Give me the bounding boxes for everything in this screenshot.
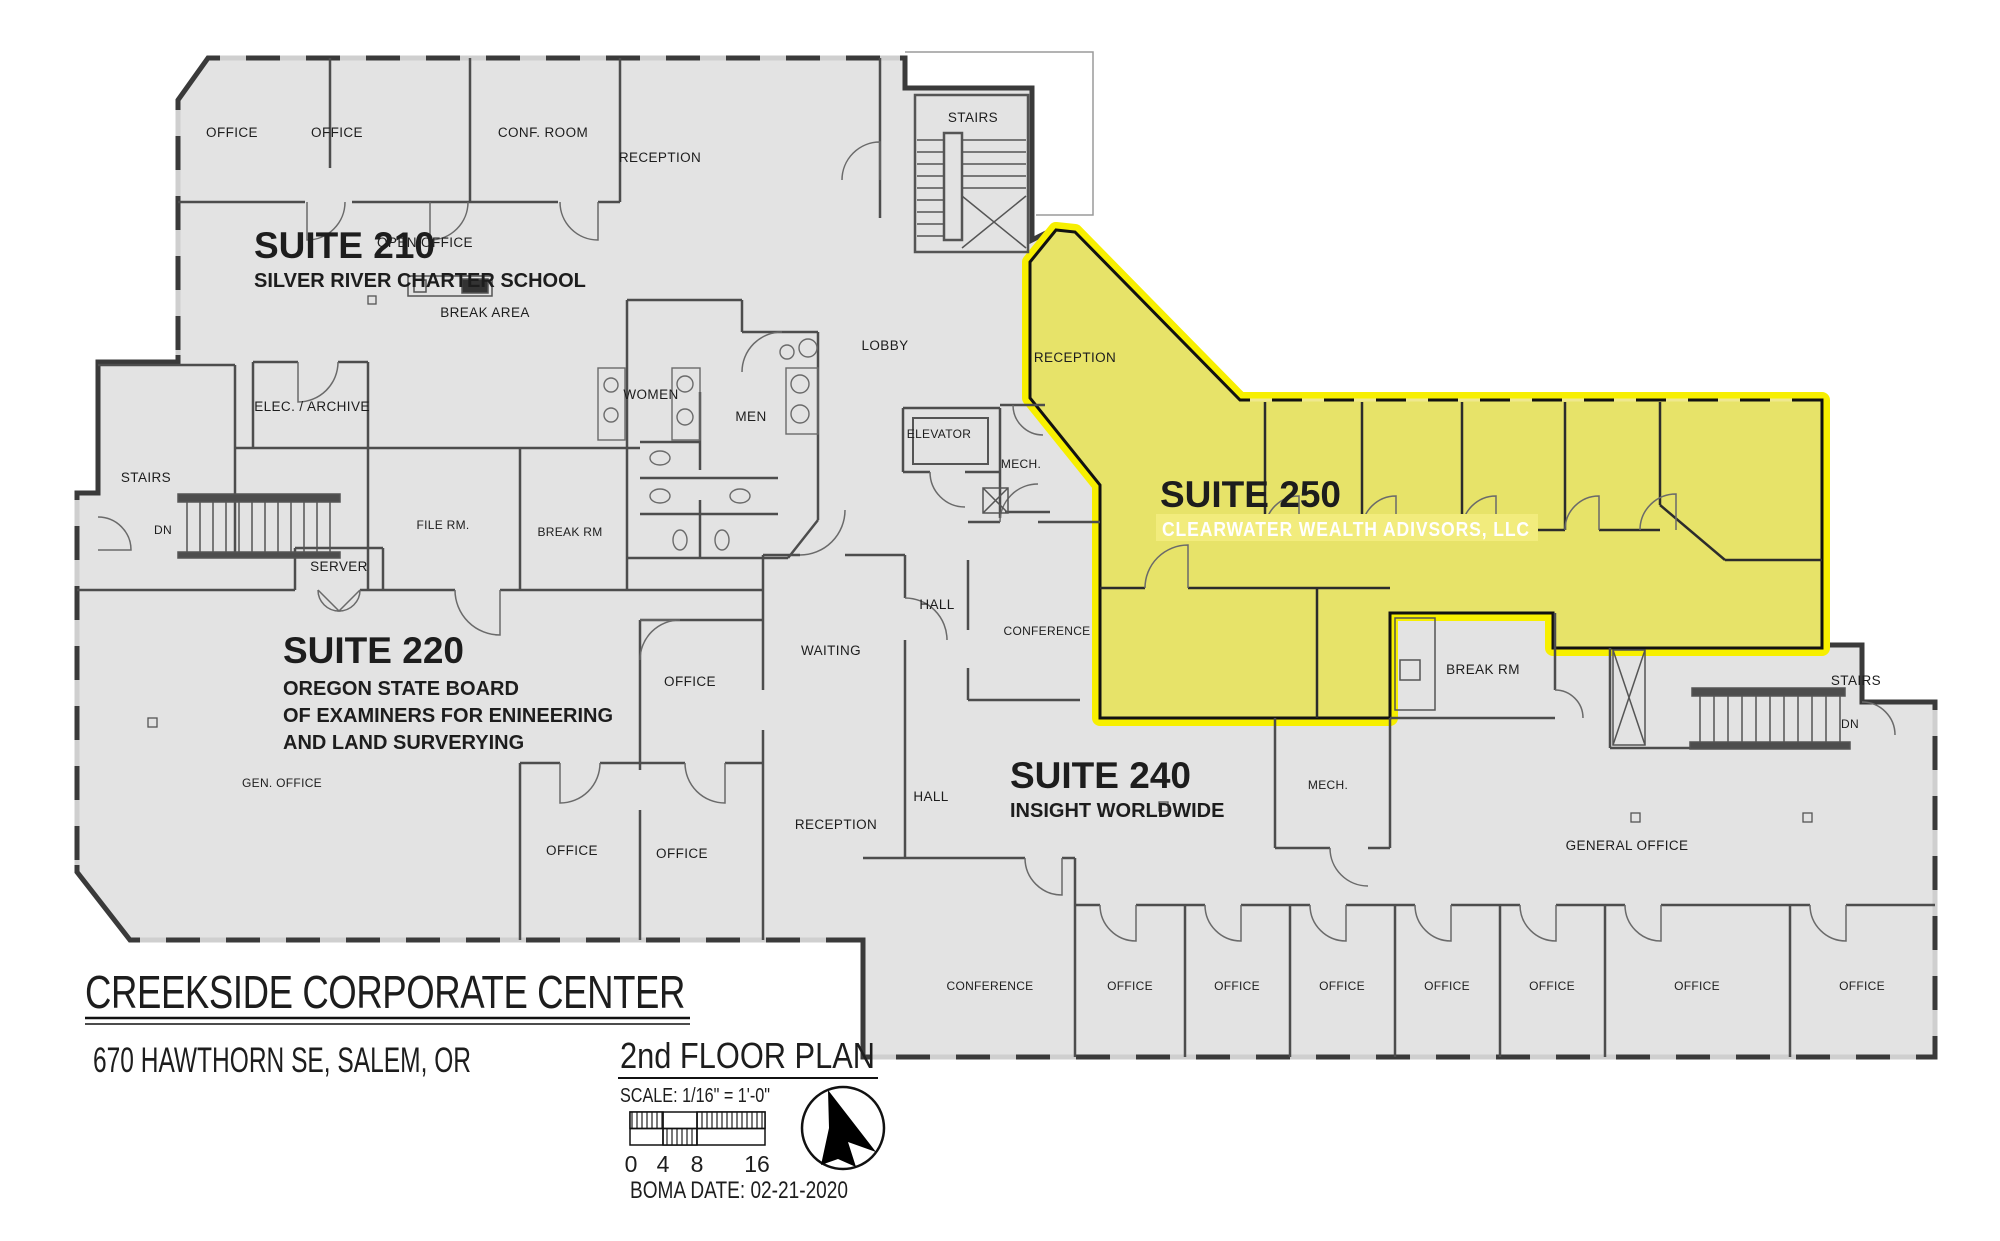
room-label: OFFICE bbox=[206, 125, 258, 140]
room-label: GENERAL OFFICE bbox=[1566, 838, 1689, 853]
room-label: RECEPTION bbox=[619, 150, 701, 165]
room-label: BREAK RM bbox=[1446, 662, 1520, 677]
room-label: MECH. bbox=[1308, 778, 1348, 792]
room-label: STAIRS bbox=[1831, 673, 1881, 688]
room-label: OFFICE bbox=[1107, 979, 1153, 993]
drawing-title: 2nd FLOOR PLAN bbox=[620, 1035, 875, 1076]
floor-plan-drawing: OFFICE OFFICE CONF. ROOM RECEPTION STAIR… bbox=[0, 0, 2000, 1241]
room-label: RECEPTION bbox=[795, 817, 877, 832]
floor-plan-page: OFFICE OFFICE CONF. ROOM RECEPTION STAIR… bbox=[0, 0, 2000, 1241]
scale-tick: 8 bbox=[691, 1151, 704, 1177]
suite-250-number: SUITE 250 bbox=[1160, 474, 1341, 515]
room-label: FILE RM. bbox=[416, 518, 469, 532]
room-label: STAIRS bbox=[121, 470, 171, 485]
room-label: OFFICE bbox=[1214, 979, 1260, 993]
room-label: OFFICE bbox=[1529, 979, 1575, 993]
suite-220-tenant-line3: AND LAND SURVERYING bbox=[283, 732, 524, 754]
suite-210-tenant: SILVER RIVER CHARTER SCHOOL bbox=[254, 270, 586, 292]
suite-220-tenant-line1: OREGON STATE BOARD bbox=[283, 678, 519, 700]
room-label: OFFICE bbox=[546, 843, 598, 858]
room-label: SERVER bbox=[310, 559, 368, 574]
boma-date: BOMA DATE: 02-21-2020 bbox=[630, 1177, 848, 1204]
room-label: OFFICE bbox=[1674, 979, 1720, 993]
room-label: CONF. ROOM bbox=[498, 125, 588, 140]
room-label: ELEVATOR bbox=[907, 427, 971, 441]
room-label: WOMEN bbox=[623, 387, 678, 402]
room-label: OFFICE bbox=[1839, 979, 1885, 993]
room-label: OFFICE bbox=[656, 846, 708, 861]
room-label: MEN bbox=[735, 409, 766, 424]
room-label: WAITING bbox=[801, 643, 861, 658]
title-block: CREEKSIDE CORPORATE CENTER 670 HAWTHORN … bbox=[85, 966, 884, 1204]
room-label: BREAK AREA bbox=[440, 305, 530, 320]
building-name: CREEKSIDE CORPORATE CENTER bbox=[85, 966, 685, 1018]
north-arrow-icon bbox=[802, 1087, 884, 1169]
scale-note: SCALE: 1/16" = 1'-0" bbox=[620, 1085, 770, 1107]
room-label: OFFICE bbox=[664, 674, 716, 689]
room-label: OFFICE bbox=[311, 125, 363, 140]
room-label: RECEPTION bbox=[1034, 350, 1116, 365]
room-label: MECH. bbox=[1001, 457, 1041, 471]
room-label: DN bbox=[154, 523, 172, 537]
room-label: GEN. OFFICE bbox=[242, 776, 322, 790]
scale-tick: 16 bbox=[744, 1151, 770, 1177]
suite-220-number: SUITE 220 bbox=[283, 630, 464, 671]
room-label: OFFICE bbox=[1319, 979, 1365, 993]
suite-220-tenant-line2: OF EXAMINERS FOR ENINEERING bbox=[283, 705, 613, 727]
room-label: OFFICE bbox=[1424, 979, 1470, 993]
scale-tick: 4 bbox=[657, 1151, 670, 1177]
room-label: CONFERENCE bbox=[946, 979, 1033, 993]
suite-240-number: SUITE 240 bbox=[1010, 755, 1191, 796]
room-label: LOBBY bbox=[861, 338, 908, 353]
room-label: DN bbox=[1841, 717, 1859, 731]
room-label: BREAK RM bbox=[537, 525, 602, 539]
suite-250-tenant: CLEARWATER WEALTH ADIVSORS, LLC bbox=[1162, 519, 1530, 541]
room-label: HALL bbox=[913, 789, 948, 804]
scale-bar-numbers: 0 4 8 16 bbox=[625, 1151, 770, 1177]
scale-tick: 0 bbox=[625, 1151, 638, 1177]
suite-210-number: SUITE 210 bbox=[254, 225, 435, 266]
room-label: CONFERENCE bbox=[1003, 624, 1090, 638]
room-label: STAIRS bbox=[948, 110, 998, 125]
suite-240-tenant: INSIGHT WORLDWIDE bbox=[1010, 800, 1224, 822]
scale-bar bbox=[630, 1112, 765, 1145]
right-stairs bbox=[1690, 688, 1850, 749]
room-label: HALL bbox=[919, 597, 954, 612]
room-label: ELEC. / ARCHIVE bbox=[254, 399, 370, 414]
building-address: 670 HAWTHORN SE, SALEM, OR bbox=[93, 1041, 471, 1080]
